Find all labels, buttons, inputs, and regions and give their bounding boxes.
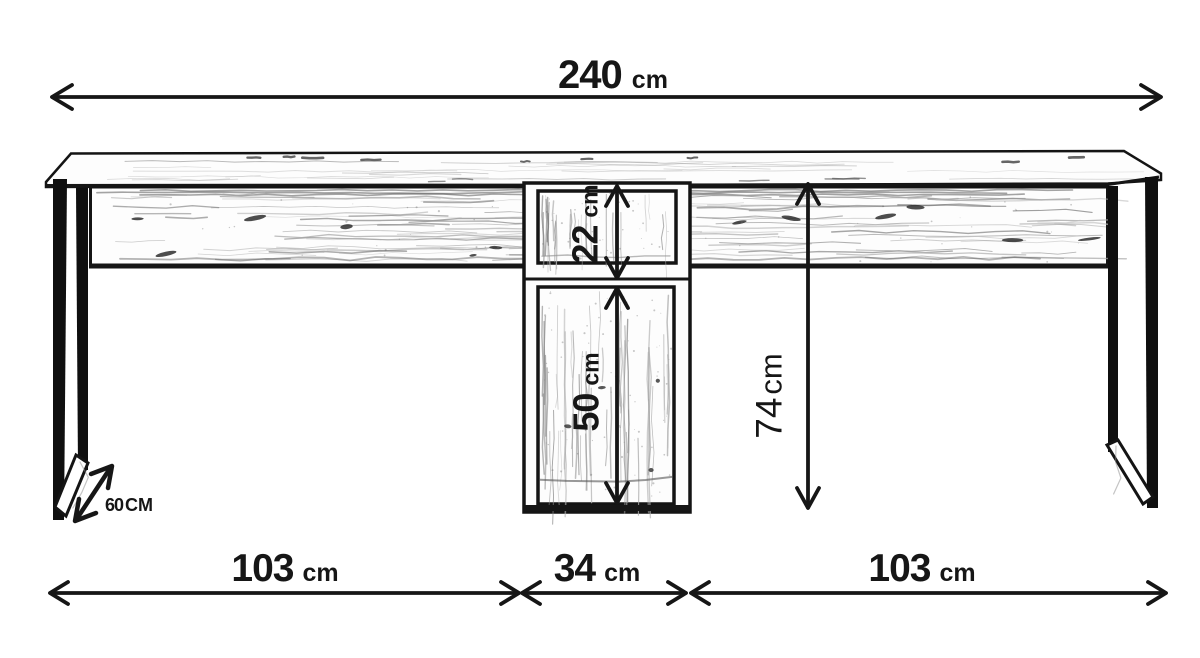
center-pedestal: [524, 183, 690, 524]
depth-label: 60CM: [105, 495, 153, 515]
desk-dimension-diagram: 240cm 22cm 50cm 74cm 60CM 103cm 34cm 103…: [0, 0, 1200, 658]
left-section-label: 103cm: [231, 547, 338, 590]
right-back-leg: [1108, 186, 1118, 452]
total-width-label: 240cm: [558, 53, 668, 97]
right-section-label: 103cm: [868, 547, 975, 590]
desk-drawing: [46, 151, 1161, 524]
center-section-label: 34cm: [554, 547, 641, 590]
height-label: 74cm: [749, 353, 790, 438]
left-front-leg: [53, 179, 67, 520]
diagram-canvas: 240cm 22cm 50cm 74cm 60CM 103cm 34cm 103…: [0, 0, 1200, 658]
left-back-leg: [76, 188, 88, 470]
right-front-leg: [1145, 177, 1158, 508]
